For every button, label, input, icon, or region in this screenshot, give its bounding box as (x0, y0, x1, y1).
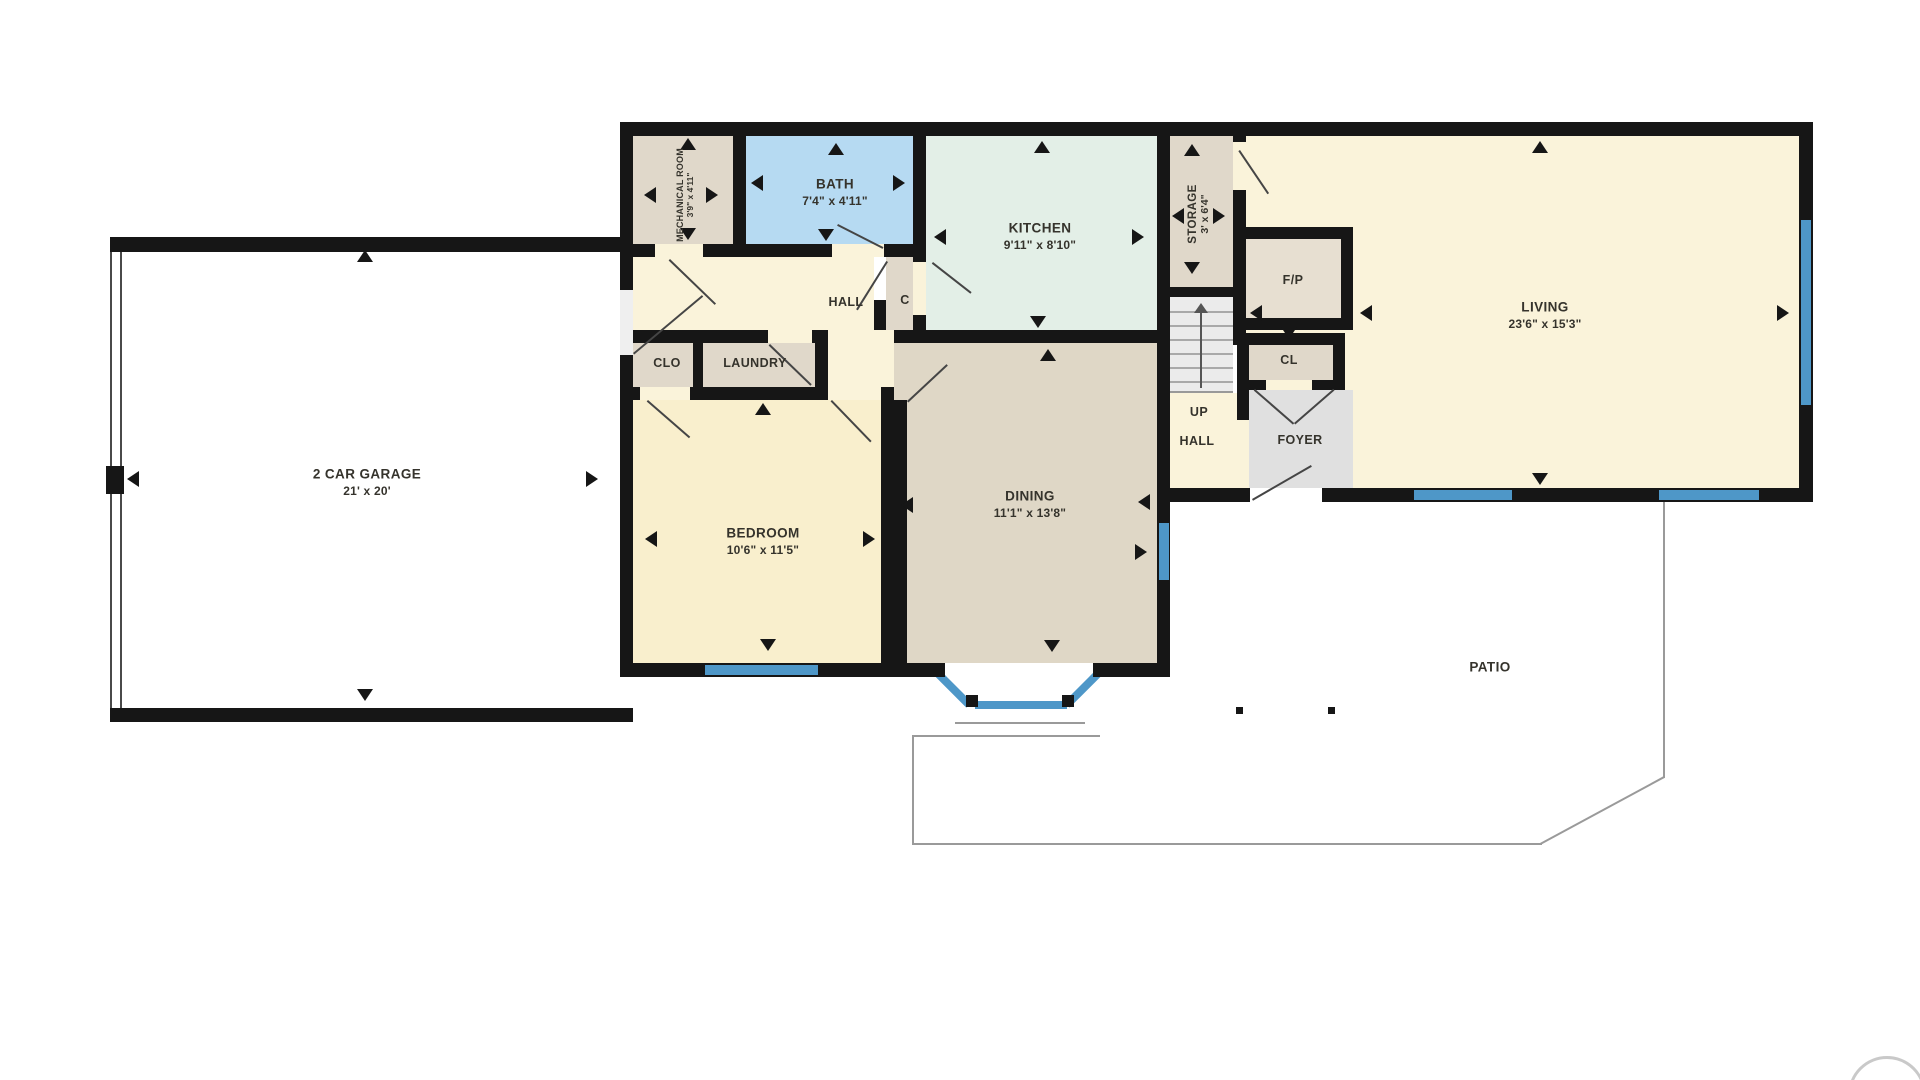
direction-arrow (1532, 473, 1548, 485)
patio-post (1328, 707, 1335, 714)
direction-arrow (1184, 262, 1200, 274)
room-label-closet-c: C (900, 293, 909, 307)
direction-arrow (645, 531, 657, 547)
room-label-storage: STORAGE 3' x 6'4" (1187, 184, 1211, 243)
patio-post (1236, 707, 1243, 714)
direction-arrow (863, 531, 875, 547)
direction-arrow (357, 250, 373, 262)
wall (815, 343, 828, 387)
direction-arrow (127, 471, 139, 487)
wall (620, 122, 633, 290)
storage-dims-text: 3' x 6'4" (1199, 184, 1211, 243)
wall (620, 122, 1813, 136)
patio-step (912, 735, 1100, 737)
stair-hall-label: HALL (1180, 434, 1215, 448)
door-opening (620, 290, 633, 355)
direction-arrow (1132, 229, 1144, 245)
patio-outline (1663, 502, 1665, 778)
room-label-laundry: LAUNDRY (723, 356, 786, 370)
wall (733, 122, 746, 257)
room-dims-dining: 11'1" x 13'8" (994, 506, 1066, 520)
wall (894, 330, 1170, 343)
direction-arrow (1044, 640, 1060, 652)
window (1414, 490, 1512, 500)
door-opening (768, 330, 812, 343)
window (1801, 220, 1811, 405)
wall (894, 400, 907, 663)
direction-arrow (706, 187, 718, 203)
wall (1237, 333, 1249, 420)
room-label-patio: PATIO (1469, 660, 1510, 675)
bay-window-glass (975, 701, 1067, 709)
stair-direction-line (1200, 312, 1202, 388)
patio-outline (912, 843, 1542, 845)
watermark-arc (1848, 1056, 1920, 1080)
room-dims-bedroom: 10'6" x 11'5" (727, 543, 799, 557)
wall (874, 300, 886, 330)
direction-arrow (1532, 141, 1548, 153)
floor-plan: 2 CAR GARAGE 21' x 20' MECHANICAL ROOM 3… (0, 0, 1920, 1080)
direction-arrow (644, 187, 656, 203)
direction-arrow (586, 471, 598, 487)
bay-window-post (1062, 695, 1074, 707)
garage-door-center-post (106, 466, 124, 494)
direction-arrow (1138, 494, 1150, 510)
bay-window-post (931, 663, 945, 677)
direction-arrow (934, 229, 946, 245)
direction-arrow (1135, 544, 1147, 560)
fireplace-wall (1246, 227, 1353, 239)
patio-outline (1540, 776, 1665, 845)
patio-step (955, 722, 1085, 724)
room-label-bedroom: BEDROOM (726, 526, 799, 541)
bay-window-opening (938, 663, 1107, 677)
window (1159, 523, 1169, 580)
room-dims-kitchen: 9'11" x 8'10" (1004, 238, 1076, 252)
wall (1312, 380, 1345, 390)
room-label-kitchen: KITCHEN (1009, 221, 1072, 236)
room-label-clo: CLO (653, 356, 681, 370)
bay-window-post (966, 695, 978, 707)
wall (913, 122, 926, 257)
stair-up-label: UP (1190, 405, 1208, 419)
bay-window-post (1093, 663, 1107, 677)
room-label-living: LIVING (1521, 300, 1568, 315)
room-dims-living: 23'6" x 15'3" (1508, 317, 1581, 331)
direction-arrow (818, 229, 834, 241)
room-label-bath: BATH (816, 177, 854, 192)
garage-wall (110, 708, 633, 722)
direction-arrow (760, 639, 776, 651)
direction-arrow (1777, 305, 1789, 321)
stair-edge (1170, 391, 1233, 393)
direction-arrow (1030, 316, 1046, 328)
door-opening (655, 244, 703, 257)
stair-up-arrow (1194, 303, 1208, 313)
mechanical-label-text: MECHANICAL ROOM (675, 148, 685, 242)
direction-arrow (357, 689, 373, 701)
room-label-closet-cl: CL (1280, 353, 1297, 367)
window (1659, 490, 1759, 500)
hall-floor (633, 257, 874, 330)
room-label-garage: 2 CAR GARAGE (313, 467, 421, 482)
direction-arrow (1250, 305, 1262, 321)
wall (1246, 380, 1266, 390)
door-opening (640, 387, 690, 400)
fireplace-wall (1246, 318, 1353, 330)
room-dims-garage: 21' x 20' (343, 484, 391, 498)
room-label-fireplace: F/P (1283, 273, 1304, 287)
room-label-dining: DINING (1005, 489, 1055, 504)
mechanical-dims-text: 3'9" x 4'11" (685, 148, 695, 242)
wall (1170, 287, 1233, 297)
fireplace-wall (1341, 227, 1353, 330)
direction-arrow (1281, 327, 1297, 339)
room-label-foyer: FOYER (1277, 433, 1322, 447)
direction-arrow (1034, 141, 1050, 153)
door-opening (913, 262, 926, 315)
patio-outline (912, 735, 914, 845)
window (705, 665, 818, 675)
direction-arrow (1172, 208, 1184, 224)
wall (881, 387, 894, 663)
wall (693, 343, 703, 387)
direction-arrow (828, 143, 844, 155)
direction-arrow (901, 497, 913, 513)
room-dims-bath: 7'4" x 4'11" (802, 194, 868, 208)
room-label-mechanical: MECHANICAL ROOM 3'9" x 4'11" (675, 148, 695, 242)
room-label-hall: HALL (829, 295, 864, 309)
storage-label-text: STORAGE (1187, 184, 1199, 243)
direction-arrow (755, 403, 771, 415)
direction-arrow (1360, 305, 1372, 321)
direction-arrow (1040, 349, 1056, 361)
direction-arrow (1213, 208, 1225, 224)
direction-arrow (893, 175, 905, 191)
direction-arrow (1184, 144, 1200, 156)
wall (620, 355, 633, 677)
direction-arrow (751, 175, 763, 191)
wall (1157, 136, 1170, 677)
